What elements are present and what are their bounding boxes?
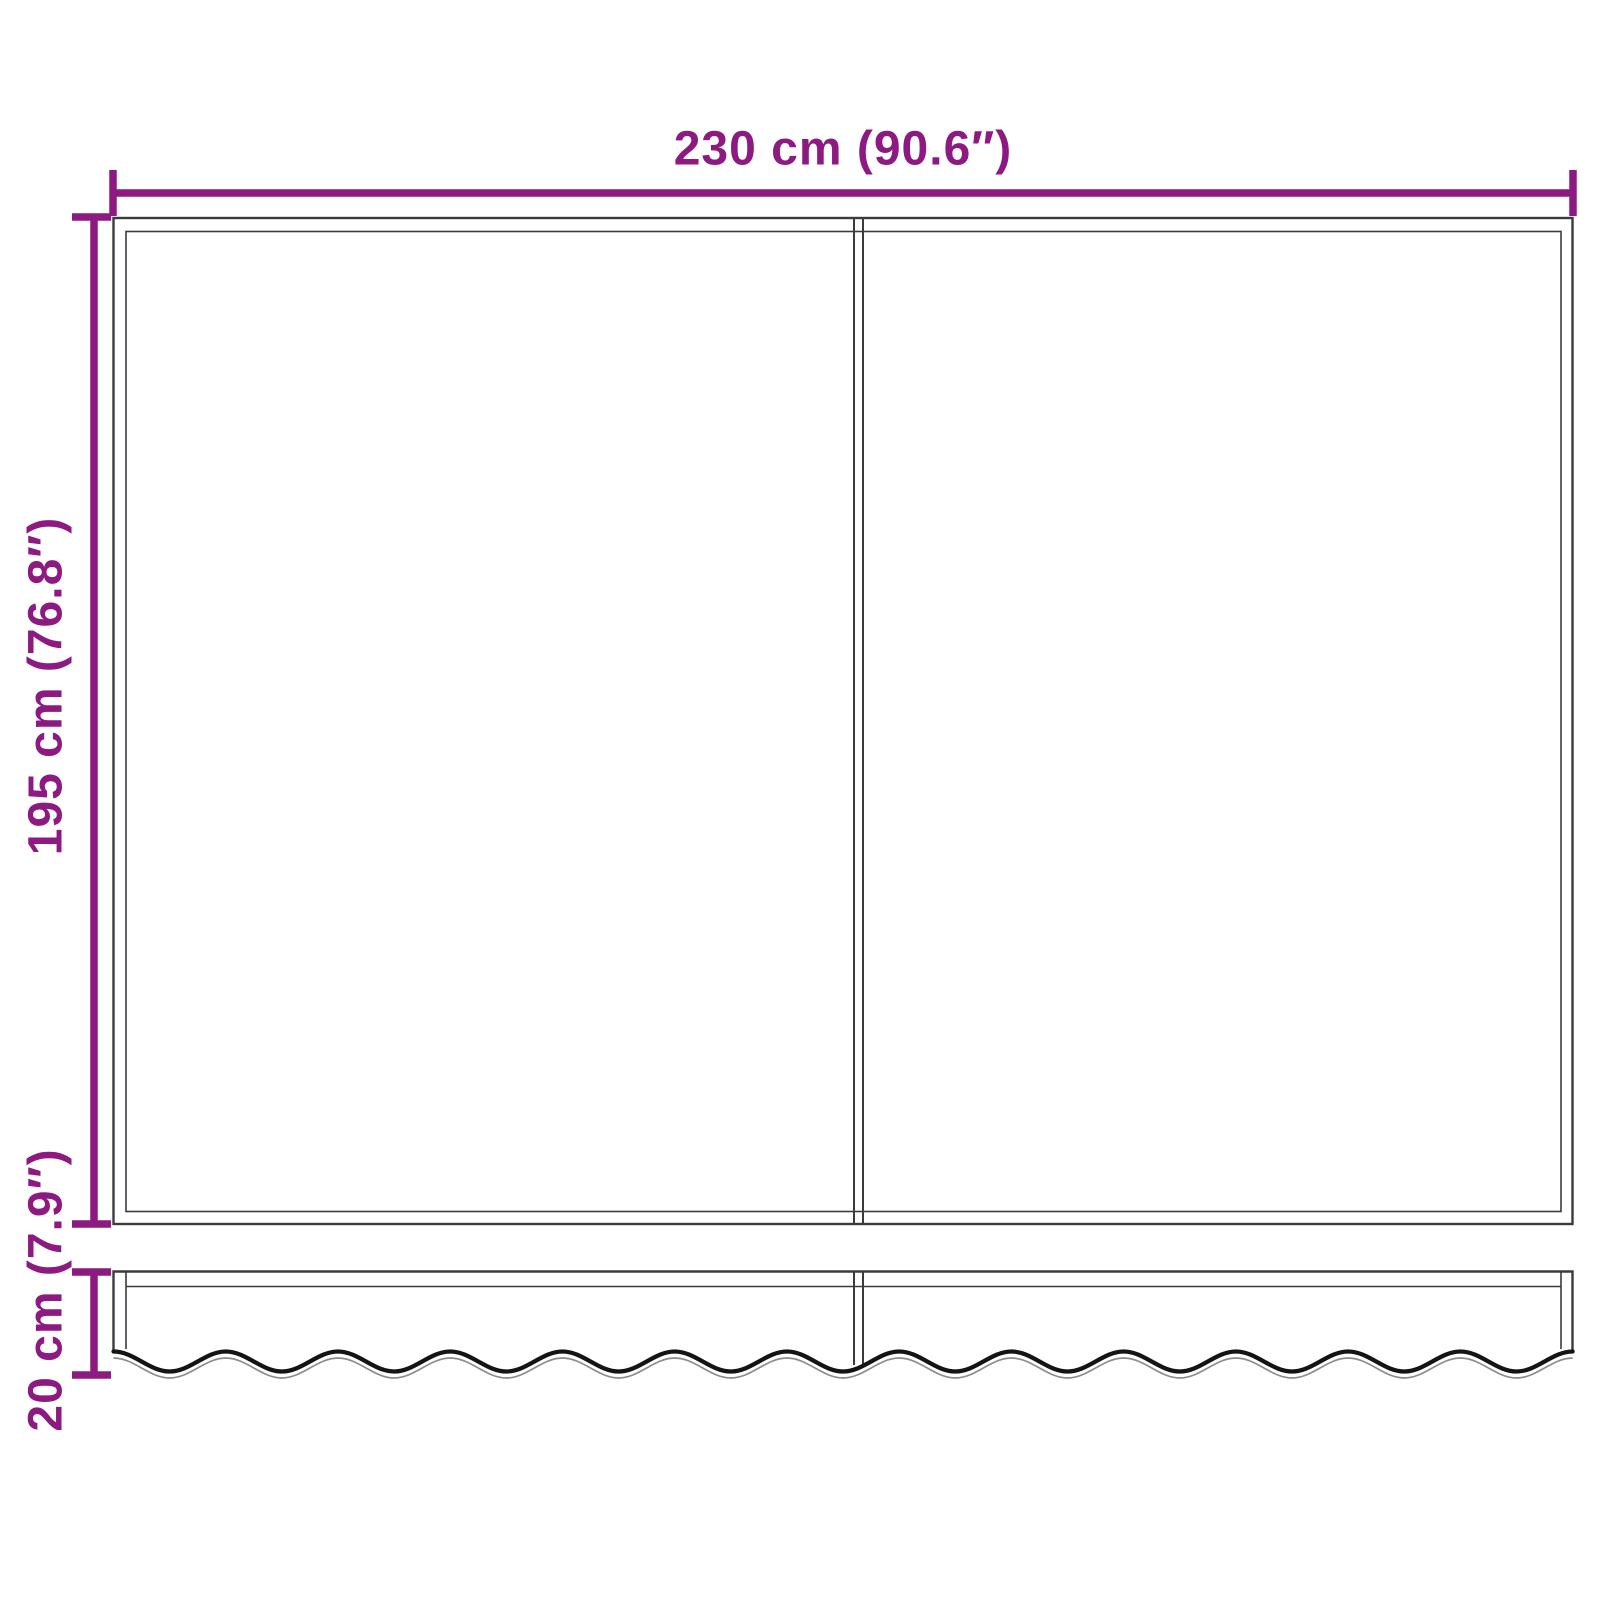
width-dimension-label: 230 cm (90.6″) (674, 123, 1013, 176)
awning-dimension-diagram: 230 cm (90.6″) 195 cm (76.8″) 20 cm (7.9… (0, 0, 1600, 1600)
valance-dimension-label: 20 cm (7.9″) (20, 1148, 73, 1431)
height-dimension-label: 195 cm (76.8″) (20, 517, 73, 856)
valance-scallop-light (114, 1358, 1573, 1378)
valance-scallop-dark (114, 1352, 1573, 1372)
height-dimension: 195 cm (76.8″) (20, 217, 112, 1224)
valance-outer-border (114, 1272, 1573, 1353)
fabric-outer-border (114, 218, 1573, 1224)
fabric-inner-seam (126, 232, 1561, 1212)
valance-panel (114, 1272, 1573, 1379)
width-dimension: 230 cm (90.6″) (113, 123, 1573, 217)
awning-fabric-panel (114, 218, 1573, 1224)
